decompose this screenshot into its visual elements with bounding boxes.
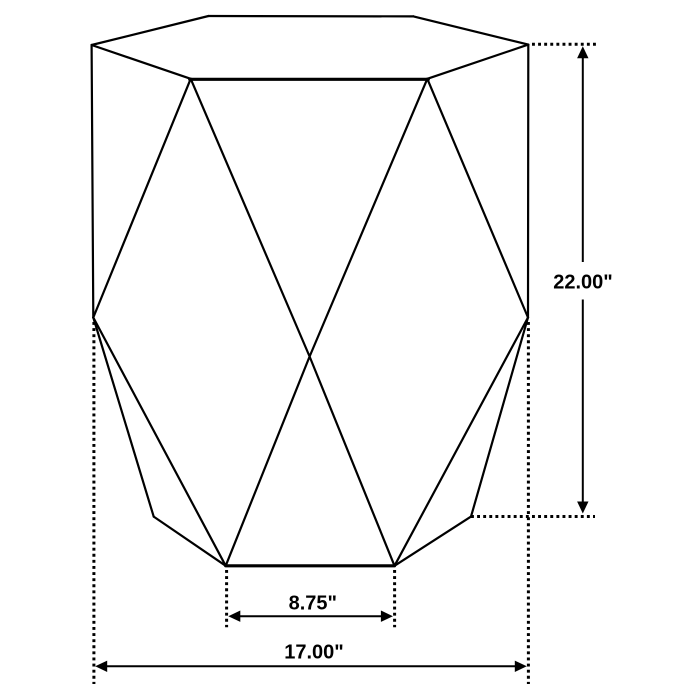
svg-text:22.00": 22.00" (553, 271, 613, 293)
svg-text:17.00": 17.00" (284, 642, 344, 664)
svg-text:8.75": 8.75" (289, 593, 337, 615)
